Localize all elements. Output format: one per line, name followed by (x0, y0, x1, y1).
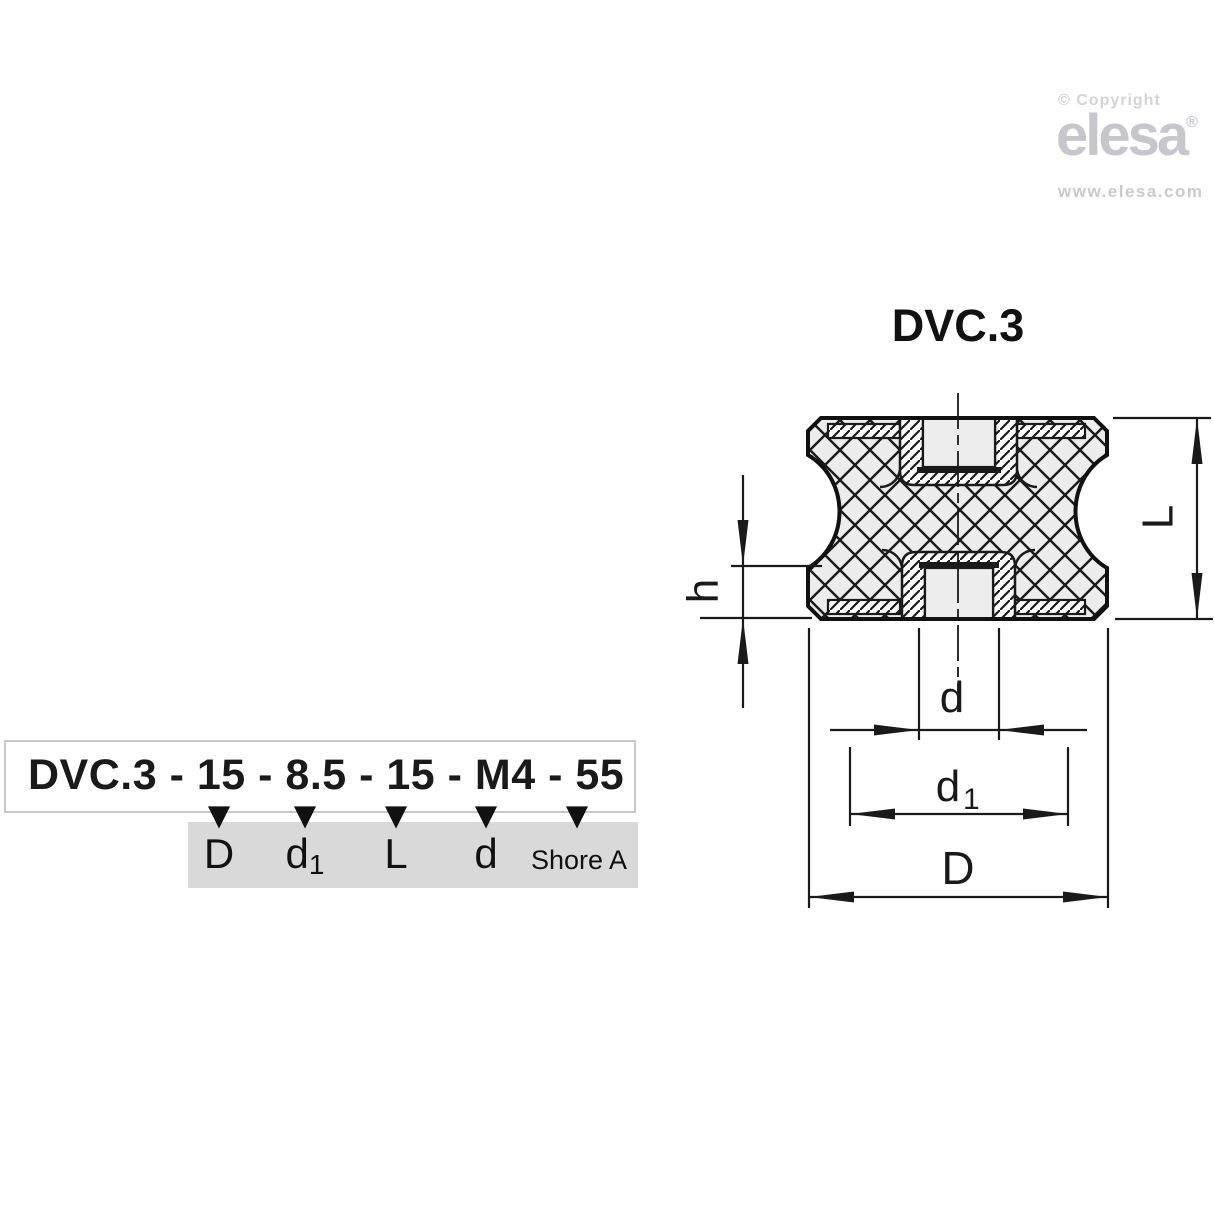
arrow-D-left (809, 892, 854, 903)
down-arrow-icon: ▼ (475, 801, 497, 830)
legend-label-d: d (474, 830, 497, 878)
arrow-d1-right (1023, 809, 1068, 820)
dim-label-h: h (679, 579, 728, 603)
arrow-d-right (999, 725, 1044, 736)
legend-label-D: D (204, 830, 234, 878)
bottom-washer-left (828, 600, 900, 614)
catalog-page: © Copyright elesa® www.elesa.com DVC.3 (0, 0, 1214, 1214)
dim-label-d: d (940, 673, 964, 722)
dim-label-d1-sub: 1 (963, 783, 980, 816)
top-washer-left (828, 424, 900, 438)
arrow-D-right (1063, 892, 1108, 903)
top-thread-hole (923, 418, 995, 467)
arrow-L-top (1192, 418, 1203, 464)
ordering-code-box: DVC.3 - 15 - 8.5 - 15 - M4 - 55 (4, 740, 636, 813)
down-arrow-icon: ▼ (566, 801, 588, 830)
arrow-h-bottom (738, 618, 749, 664)
dim-label-L: L (1134, 505, 1183, 529)
arrow-d1-left (850, 809, 895, 820)
arrow-L-bottom (1192, 573, 1203, 619)
bottom-thread-hole (925, 568, 993, 619)
legend-label-shore-a: Shore A (531, 845, 627, 876)
dim-label-D: D (941, 842, 974, 894)
down-arrow-icon: ▼ (385, 801, 407, 830)
down-arrow-icon: ▼ (294, 801, 316, 830)
arrow-h-top (738, 520, 749, 566)
top-washer-right (1017, 424, 1085, 438)
bottom-washer-right (1015, 600, 1085, 614)
legend-label-L: L (384, 830, 407, 878)
arrow-d-left (874, 725, 919, 736)
ordering-code: DVC.3 - 15 - 8.5 - 15 - M4 - 55 (28, 751, 624, 800)
legend-label-d1: d1 (286, 830, 325, 881)
dim-label-d1: d (936, 762, 960, 811)
technical-drawing: L h d d 1 (0, 0, 1214, 1214)
down-arrow-icon: ▼ (208, 801, 230, 830)
